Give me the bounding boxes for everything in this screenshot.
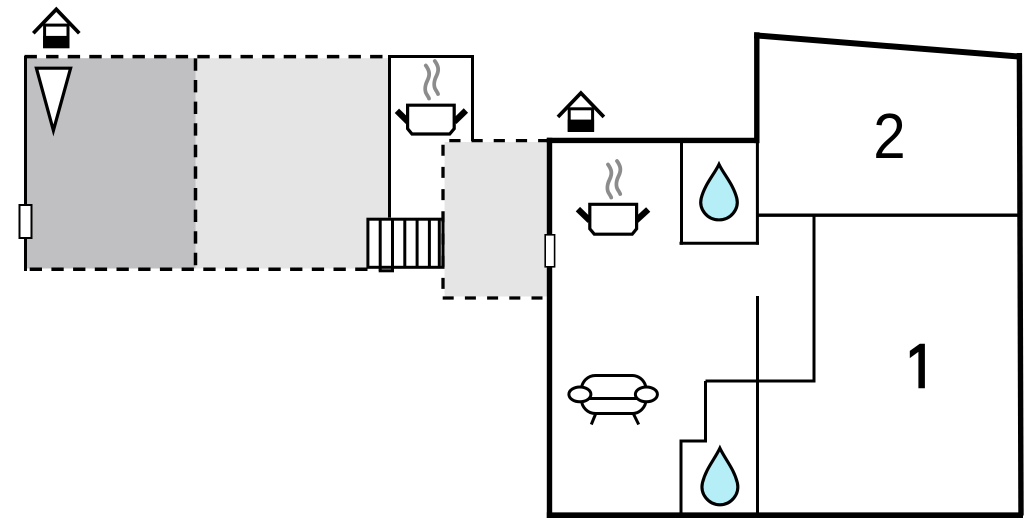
svg-text:2: 2 <box>873 100 905 171</box>
